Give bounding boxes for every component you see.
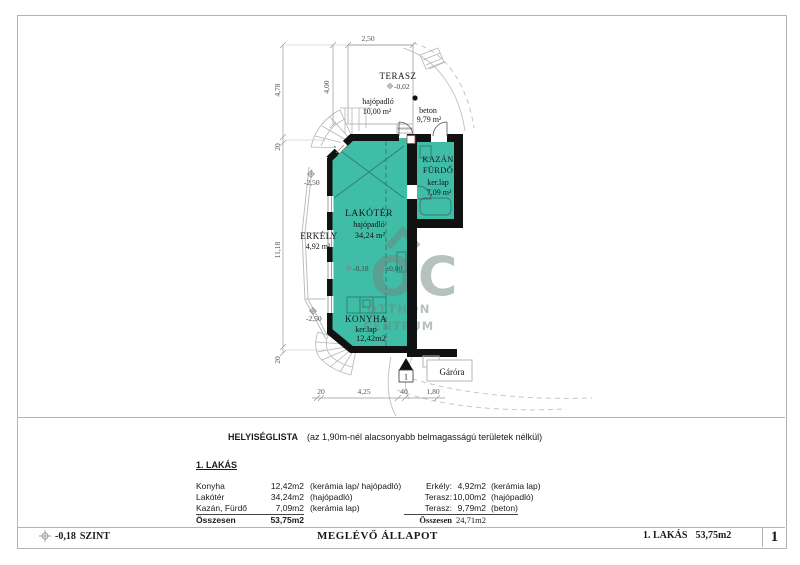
level-lakoter: -0,18 xyxy=(353,264,369,273)
terasz-floor: hajópadló xyxy=(362,97,394,106)
total-label: Összesen xyxy=(196,515,268,526)
beton-area: 9,79 m² xyxy=(417,115,442,124)
plan-table-divider xyxy=(17,417,785,418)
room-name: Konyha xyxy=(196,481,268,492)
total-label: Összesen xyxy=(404,515,452,526)
level-erkely-top: -2,50 xyxy=(304,178,320,187)
dim-left-wall-bottom: 20 xyxy=(273,356,282,364)
footer-level-group: -0,18 SZINT xyxy=(39,530,110,542)
room-list-heading: HELYISÉGLISTA (az 1,90m-nél alacsonyabb … xyxy=(228,432,542,443)
level-entry: ±0,00 xyxy=(385,264,402,273)
konyha-area: 12,42m2 xyxy=(356,333,386,343)
total-area: 24,71m2 xyxy=(452,515,486,526)
table-total-row: Összesen 24,71m2 xyxy=(404,515,541,526)
dim-left-main: 11,18 xyxy=(273,241,282,258)
page-number: 1 xyxy=(762,527,786,547)
room-finish: (kerámia lap) xyxy=(486,481,541,492)
terasz-area: 10,00 m² xyxy=(363,107,392,116)
dim-bottom-4: 1,80 xyxy=(426,387,439,396)
table-row: Terasz: 9,79m2 (beton) xyxy=(404,503,541,515)
lakoter-area: 34,24 m² xyxy=(355,230,386,240)
dim-bottom-2: 4,25 xyxy=(357,387,370,396)
room-area: 9,79m2 xyxy=(452,503,486,515)
room-name: Erkély: xyxy=(404,481,452,492)
room-finish: (kerámia lap) xyxy=(304,503,360,515)
entry-marker: 1 xyxy=(399,358,413,382)
room-area: 34,24m2 xyxy=(268,492,304,503)
footer-level-label: SZINT xyxy=(80,531,110,542)
room-name: Terasz: xyxy=(404,492,452,503)
room-finish: (hajópadló) xyxy=(486,492,534,503)
room-name: Terasz: xyxy=(404,503,452,515)
table-row: Konyha 12,42m2 (kerámia lap/ hajópadló) xyxy=(196,481,401,492)
table-row: Terasz: 10,00m2 (hajópadló) xyxy=(404,492,541,503)
dim-bottom-1: 20 xyxy=(317,387,325,396)
room-name: Lakótér xyxy=(196,492,268,503)
room-area: 10,00m2 xyxy=(452,492,486,503)
erkely-name: ERKÉLY xyxy=(300,231,338,241)
level-terasz: -0,02 xyxy=(394,82,410,91)
footer-apartment: 1. LAKÁS xyxy=(643,530,687,541)
entry-number: 1 xyxy=(404,373,408,382)
dim-bottom-3: 40 xyxy=(400,387,408,396)
table-row: Lakótér 34,24m2 (hajópadló) xyxy=(196,492,401,503)
room-name: Kazán, Fürdő xyxy=(196,503,268,515)
footer-apartment-group: 1. LAKÁS 53,75m2 xyxy=(643,530,731,541)
lakoter-name: LAKÓTÉR xyxy=(345,207,393,219)
room-area: 4,92m2 xyxy=(452,481,486,492)
kazan-name1: KAZÁN xyxy=(422,154,453,164)
lakoter-floor: hajópadló xyxy=(353,220,385,229)
table-row: Erkély: 4,92m2 (kerámia lap) xyxy=(404,481,541,492)
room-finish: (kerámia lap/ hajópadló) xyxy=(304,481,401,492)
room-list-title: HELYISÉGLISTA xyxy=(228,432,298,443)
level-erkely-bottom: -2,50 xyxy=(306,314,322,323)
room-list-subtitle: (az 1,90m-nél alacsonyabb belmagasságú t… xyxy=(307,432,542,443)
dim-left-wall-top: 20 xyxy=(273,143,282,151)
table-row: Kazán, Fürdő 7,09m2 (kerámia lap) xyxy=(196,503,401,515)
erkely-area: 4,92 m² xyxy=(306,242,331,251)
gas-meter: Gáróra xyxy=(423,356,472,381)
apartment-heading: 1. LAKÁS xyxy=(196,460,237,470)
room-area: 12,42m2 xyxy=(268,481,304,492)
konyha-name: KONYHA xyxy=(345,314,387,324)
terasz-dot xyxy=(412,95,417,100)
footer-status-title: MEGLÉVŐ ÁLLAPOT xyxy=(317,530,438,542)
footer-apartment-area: 53,75m2 xyxy=(695,530,731,541)
room-finish: (hajópadló) xyxy=(304,492,353,503)
room-list-left-table: Konyha 12,42m2 (kerámia lap/ hajópadló) … xyxy=(196,481,401,526)
dim-left-top: 4,78 xyxy=(273,83,282,96)
total-area: 53,75m2 xyxy=(268,515,304,526)
title-block: -0,18 SZINT MEGLÉVŐ ÁLLAPOT 1. LAKÁS 53,… xyxy=(17,527,785,547)
beton-floor: beton xyxy=(419,106,437,115)
gas-meter-label: Gáróra xyxy=(440,367,465,377)
kazan-floor: ker.lap xyxy=(427,178,449,187)
room-area: 7,09m2 xyxy=(268,503,304,515)
kazan-area: 7,09 m² xyxy=(427,188,452,197)
footer-level: -0,18 xyxy=(55,531,76,542)
dim-terasz-h: 4,00 xyxy=(322,80,331,93)
kazan-name2: FÜRDŐ xyxy=(423,165,453,175)
room-list-right-table: Erkély: 4,92m2 (kerámia lap) Terasz: 10,… xyxy=(404,481,541,526)
table-total-row: Összesen 53,75m2 xyxy=(196,515,401,526)
dim-top: 2,50 xyxy=(361,34,374,43)
level-symbol-icon xyxy=(39,530,51,542)
floor-plan-drawing: OC OTTHON CENTRUM xyxy=(0,0,800,420)
terasz-name: TERASZ xyxy=(379,71,416,81)
door-post-marker xyxy=(407,136,415,144)
room-finish: (beton) xyxy=(486,503,518,515)
